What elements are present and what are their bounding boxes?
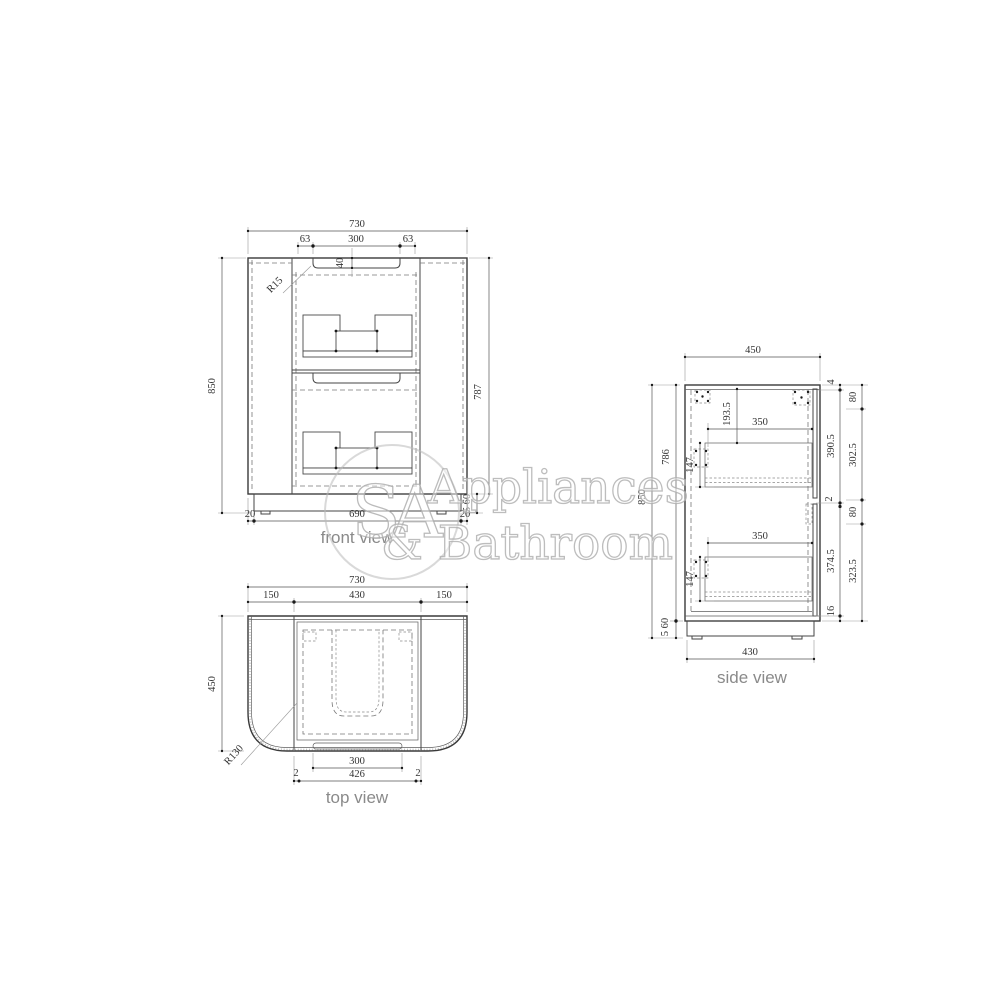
front-view-label: front view [321, 528, 394, 547]
side-bracket-drawer2 [694, 560, 708, 578]
front-view: 730 63 300 63 40 R15 850 787 [207, 219, 493, 547]
top-dim-panel-left: 150 [263, 590, 279, 601]
side-view: 450 193.5 350 147 350 147 4 390.5 [637, 345, 868, 687]
side-bracket-drawer1 [694, 449, 708, 467]
top-dim-recess-width: 300 [349, 756, 365, 767]
top-dim-gap-left: 2 [293, 768, 298, 779]
side-dim-handle1-offset: 80 [848, 392, 859, 403]
front-dim-kick-inset-left: 20 [245, 509, 256, 520]
side-dim-body-height: 786 [661, 449, 672, 465]
side-bracket-top-left [695, 390, 710, 403]
side-view-label: side view [717, 668, 788, 687]
front-dim-kick-width: 690 [349, 509, 365, 520]
front-dim-overall-height: 850 [207, 378, 218, 394]
top-view-label: top view [326, 788, 389, 807]
side-dim-kick-height: 5 60 [660, 618, 671, 636]
front-dim-recess-width: 300 [348, 234, 364, 245]
side-dim-drawer2-depth: 350 [752, 531, 768, 542]
side-dim-overall-height: 850 [637, 489, 648, 505]
top-dim-panel-right: 150 [436, 590, 452, 601]
front-top-drawer-internals [303, 315, 412, 357]
vanity-drawing-svg: 730 63 300 63 40 R15 850 787 [0, 0, 1000, 1000]
side-bracket-top-right [793, 390, 810, 405]
side-dim-handle2-offset: 80 [848, 507, 859, 518]
side-dim-handle2-bottom: 323.5 [848, 559, 859, 583]
top-view: 730 150 430 150 450 R130 300 426 2 [207, 575, 467, 807]
side-dim-top-panel: 4 [826, 379, 837, 385]
top-view-drawing [248, 616, 467, 751]
side-dim-bottom-panel: 16 [826, 606, 837, 617]
side-dim-drawer1-height: 147 [685, 457, 696, 473]
front-dim-recess-depth: 40 [335, 258, 346, 269]
side-dim-front2-height: 374.5 [826, 549, 837, 573]
front-dim-recess-left: 63 [300, 234, 311, 245]
top-dim-inner-section: 430 [349, 590, 365, 601]
front-dim-overall-width: 730 [349, 219, 365, 230]
side-dim-drawer2-height: 147 [685, 571, 696, 587]
side-dim-front-gap: 2 [824, 496, 835, 501]
side-dim-handle-spacing: 302.5 [848, 443, 859, 467]
front-view-dimensions: 730 63 300 63 40 R15 850 787 [207, 219, 493, 525]
front-view-drawing [248, 258, 467, 514]
side-view-dimensions: 450 193.5 350 147 350 147 4 390.5 [637, 345, 868, 663]
front-dim-kick-inset-right: 20 [460, 509, 471, 520]
front-dim-body-height: 787 [473, 384, 484, 400]
front-dim-recess-right: 63 [403, 234, 414, 245]
top-dim-inner-width: 426 [349, 769, 365, 780]
side-dim-drawer-top-offset: 193.5 [722, 402, 733, 426]
side-dim-front1-height: 390.5 [826, 434, 837, 458]
top-dim-overall-width: 730 [349, 575, 365, 586]
top-view-dimensions: 730 150 430 150 450 R130 300 426 2 [207, 575, 467, 785]
front-bottom-drawer-internals [303, 432, 412, 474]
technical-drawing-page: 730 63 300 63 40 R15 850 787 [0, 0, 1000, 1000]
front-dim-recess-radius: R15 [265, 275, 285, 295]
side-dim-base-width: 430 [742, 647, 758, 658]
top-dim-gap-right: 2 [415, 768, 420, 779]
top-dim-overall-depth: 450 [207, 676, 218, 692]
side-dim-top-width: 450 [745, 345, 761, 356]
side-dim-drawer1-depth: 350 [752, 417, 768, 428]
